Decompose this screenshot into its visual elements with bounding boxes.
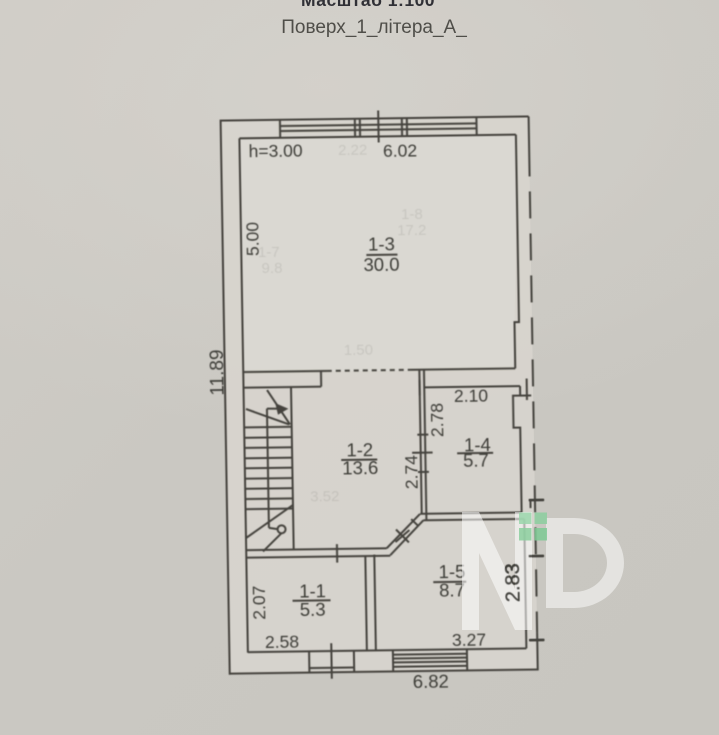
svg-text:2.74: 2.74	[401, 455, 422, 490]
svg-text:2.07: 2.07	[249, 586, 270, 620]
svg-text:6.82: 6.82	[413, 670, 449, 691]
svg-text:2.10: 2.10	[454, 386, 489, 406]
svg-text:17.2: 17.2	[397, 222, 426, 239]
svg-text:3.27: 3.27	[452, 630, 486, 650]
svg-text:2.58: 2.58	[265, 632, 299, 652]
svg-text:5.3: 5.3	[300, 599, 326, 620]
svg-text:Масштаб 1:100: Масштаб 1:100	[301, 0, 435, 10]
svg-text:11.89: 11.89	[207, 349, 229, 395]
svg-text:1.50: 1.50	[344, 342, 373, 359]
svg-text:6.02: 6.02	[383, 140, 417, 160]
svg-text:1-3: 1-3	[368, 233, 395, 254]
svg-text:2.22: 2.22	[338, 142, 367, 159]
svg-text:1-7: 1-7	[258, 244, 280, 261]
svg-text:2.83: 2.83	[502, 563, 525, 602]
svg-text:2.78: 2.78	[427, 403, 448, 437]
svg-text:Поверх_1_літера_А_: Поверх_1_літера_А_	[281, 17, 467, 38]
svg-text:9.8: 9.8	[261, 260, 282, 277]
svg-text:1-8: 1-8	[401, 206, 423, 223]
svg-text:h=3.00: h=3.00	[248, 140, 303, 161]
svg-text:3.52: 3.52	[310, 488, 339, 505]
svg-text:30.0: 30.0	[363, 254, 399, 275]
